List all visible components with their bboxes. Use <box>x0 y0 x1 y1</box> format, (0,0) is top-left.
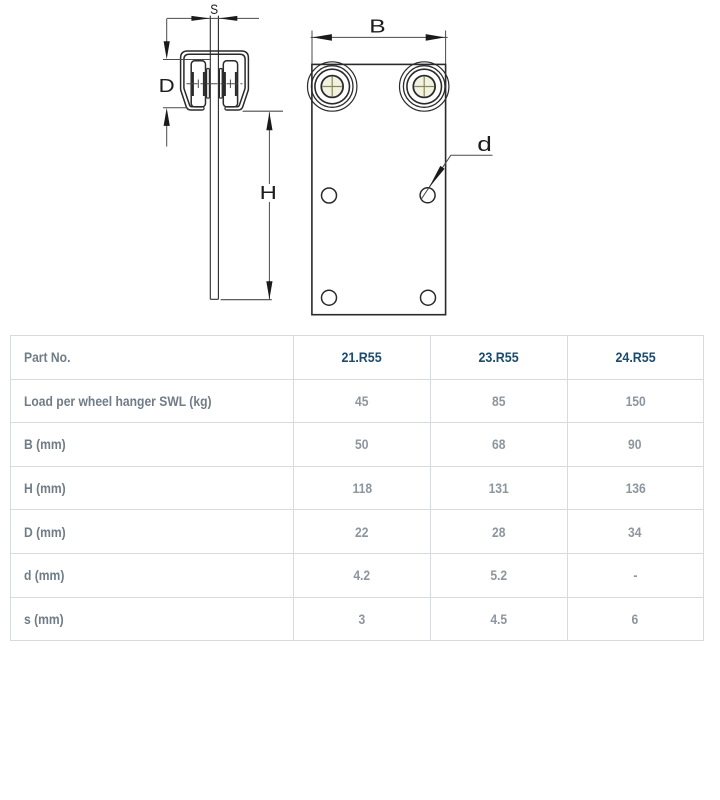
svg-text:d: d <box>477 133 492 155</box>
svg-text:H: H <box>260 183 277 204</box>
svg-text:D: D <box>159 76 175 96</box>
svg-text:B: B <box>369 15 385 36</box>
svg-text:S: S <box>210 2 218 17</box>
